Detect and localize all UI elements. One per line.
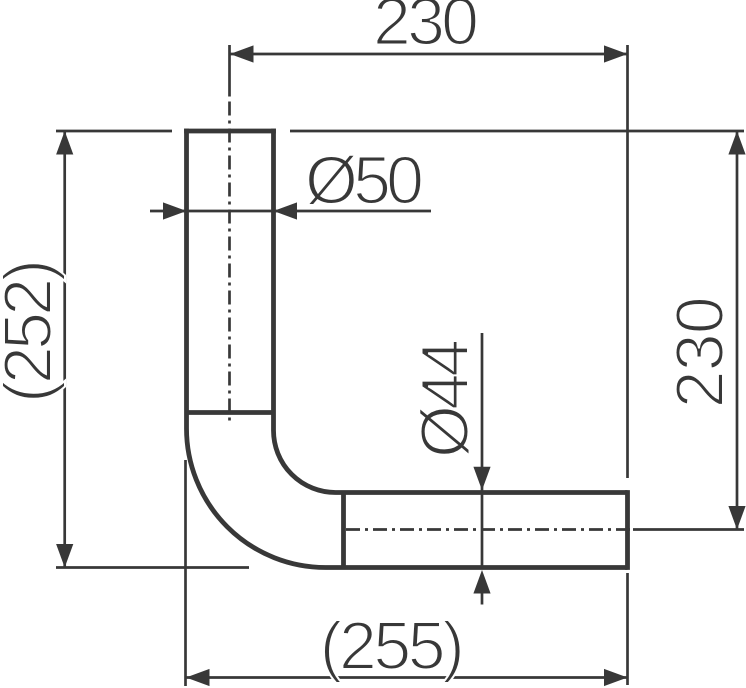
svg-text:Ø44: Ø44 (407, 339, 483, 458)
svg-text:(252): (252) (0, 259, 66, 403)
svg-text:(255): (255) (320, 608, 465, 684)
svg-text:Ø50: Ø50 (305, 143, 424, 219)
svg-text:230: 230 (373, 0, 479, 60)
svg-text:230: 230 (662, 296, 738, 408)
